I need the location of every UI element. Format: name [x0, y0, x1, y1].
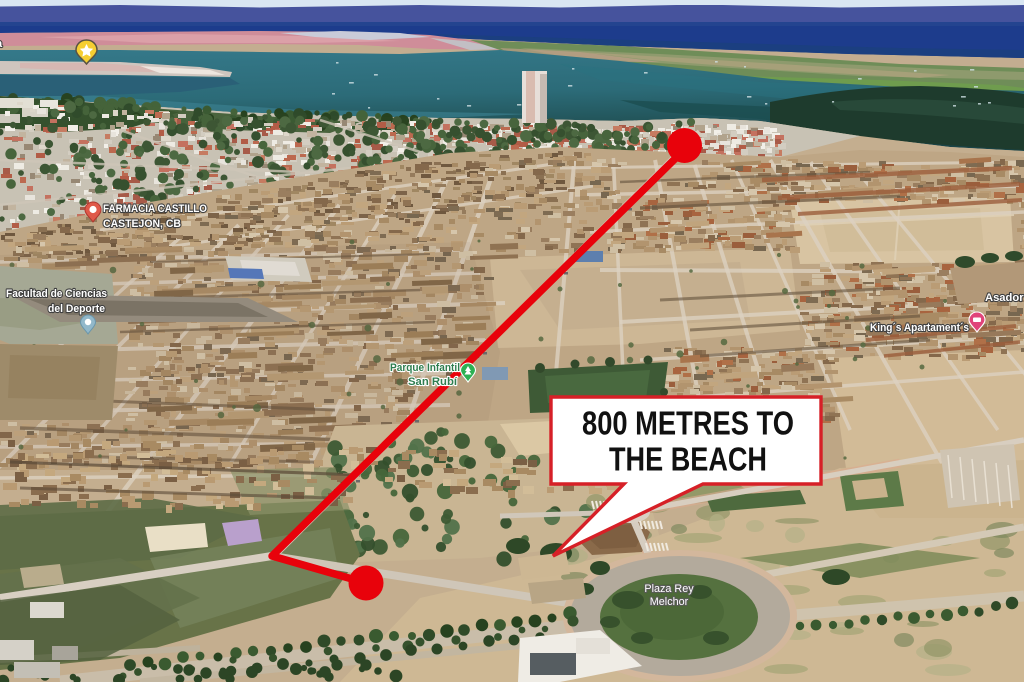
svg-text:800 METRES TO: 800 METRES TO [582, 405, 794, 442]
svg-text:San Rubí: San Rubí [408, 376, 458, 388]
svg-text:Plaza Rey: Plaza Rey [644, 583, 694, 595]
svg-text:Asador: Asador [985, 292, 1024, 304]
svg-text:FARMACIA CASTILLO: FARMACIA CASTILLO [103, 203, 207, 215]
svg-text:Parque Infantil: Parque Infantil [390, 362, 460, 374]
svg-text:del Deporte: del Deporte [48, 303, 105, 315]
svg-text:THE BEACH: THE BEACH [609, 441, 767, 478]
svg-text:Facultad de Ciencias: Facultad de Ciencias [6, 288, 107, 300]
svg-text:CASTEJON, CB: CASTEJON, CB [103, 218, 181, 230]
svg-text:King´s Apartament´s: King´s Apartament´s [870, 322, 969, 334]
svg-text:Melchor: Melchor [650, 596, 689, 608]
